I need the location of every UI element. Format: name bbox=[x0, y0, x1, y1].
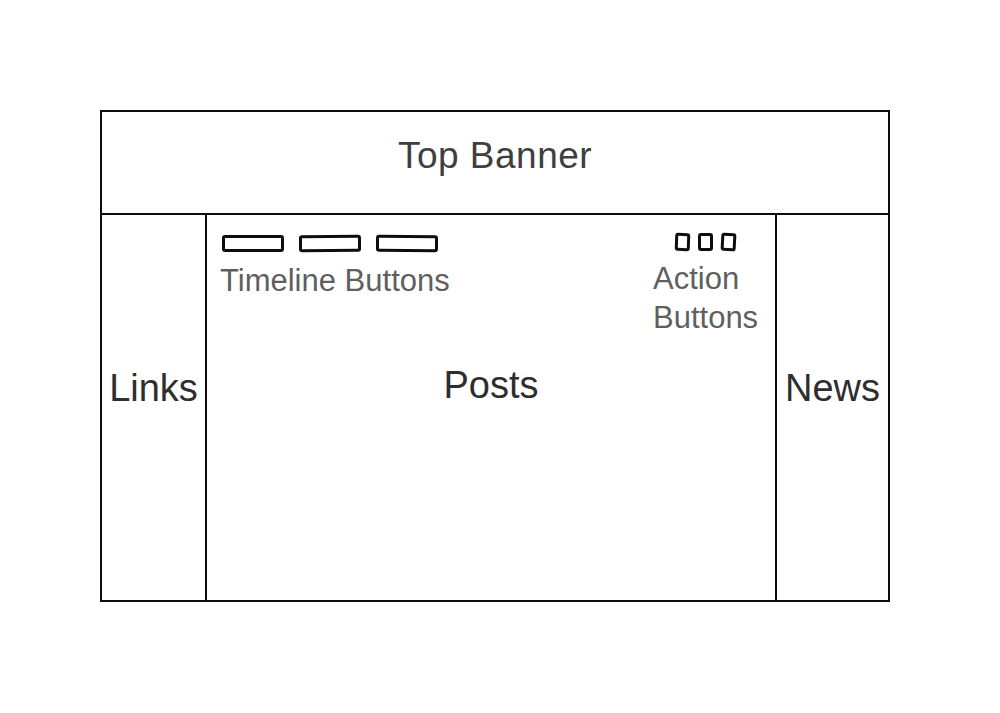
links-sidebar: Links bbox=[102, 215, 207, 600]
links-label: Links bbox=[102, 367, 205, 410]
news-sidebar: News bbox=[775, 215, 888, 600]
action-buttons-row bbox=[675, 233, 758, 251]
top-banner-label: Top Banner bbox=[398, 135, 592, 177]
timeline-button[interactable] bbox=[222, 235, 284, 252]
news-label: News bbox=[777, 367, 888, 410]
wireframe-frame: Top Banner Links Timeline Buttons Action… bbox=[100, 110, 890, 602]
posts-label: Posts bbox=[207, 364, 775, 407]
action-buttons-group: Action Buttons bbox=[653, 233, 758, 337]
top-banner: Top Banner bbox=[102, 112, 888, 215]
wireframe-canvas: Top Banner Links Timeline Buttons Action… bbox=[0, 0, 1000, 713]
action-buttons-label: Action Buttons bbox=[653, 259, 758, 337]
timeline-button[interactable] bbox=[376, 235, 438, 252]
action-button[interactable] bbox=[721, 233, 737, 252]
content-row: Links Timeline Buttons Action Buttons Po… bbox=[102, 215, 888, 600]
timeline-buttons-label: Timeline Buttons bbox=[220, 263, 450, 299]
posts-area: Timeline Buttons Action Buttons Posts bbox=[207, 215, 775, 600]
action-button[interactable] bbox=[675, 233, 691, 252]
action-label-line2: Buttons bbox=[653, 298, 758, 337]
timeline-button[interactable] bbox=[299, 235, 361, 252]
action-label-line1: Action bbox=[653, 259, 758, 298]
action-button[interactable] bbox=[698, 233, 713, 251]
timeline-buttons-row bbox=[222, 235, 438, 252]
